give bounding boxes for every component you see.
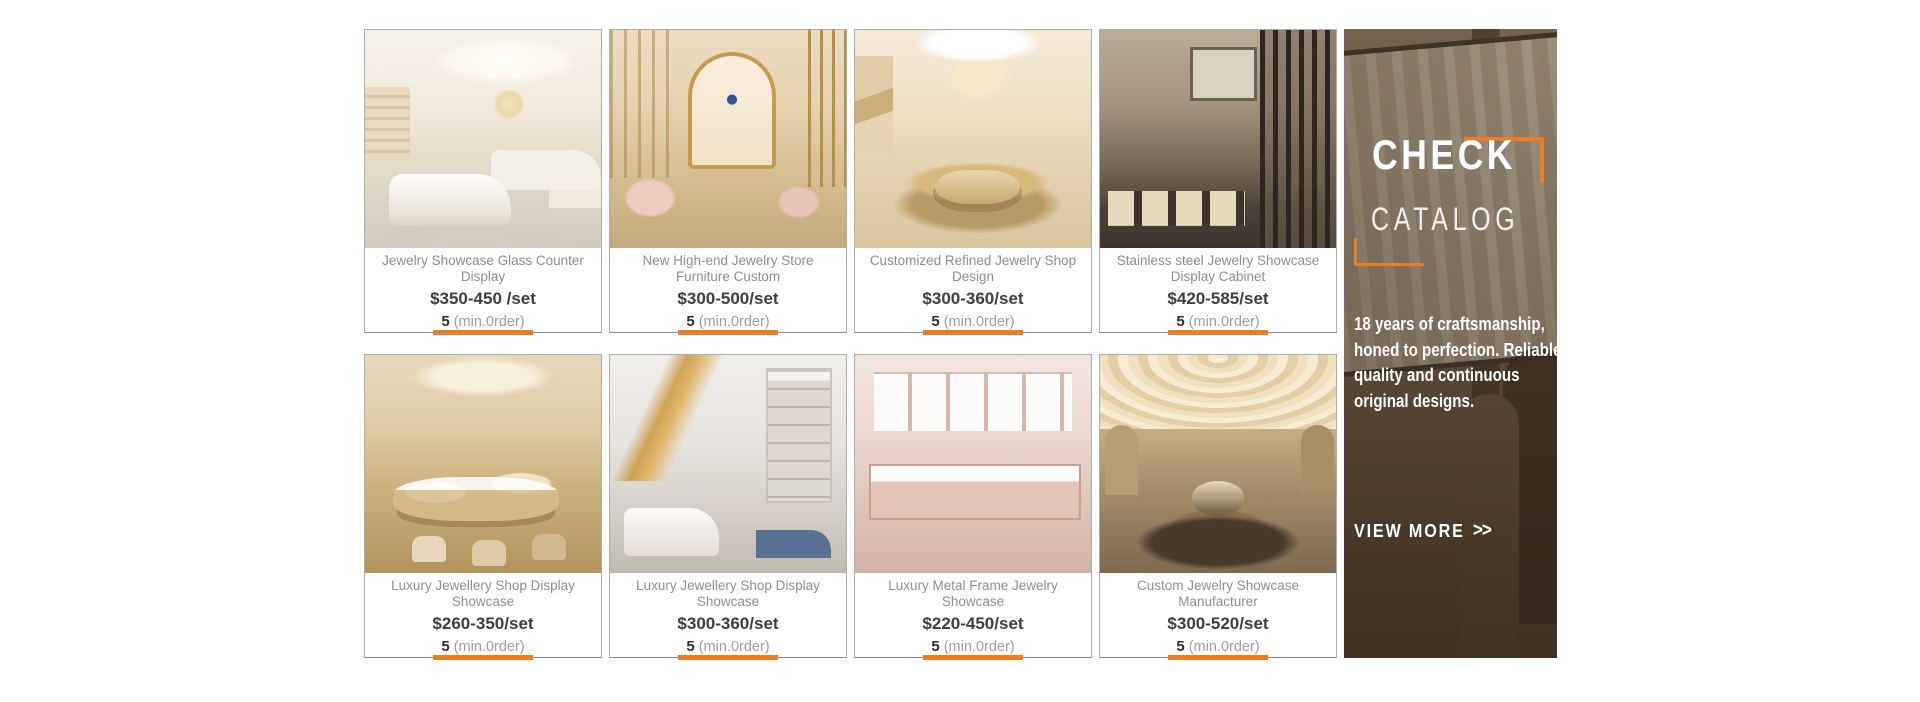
product-card[interactable]: Custom Jewelry Showcase Manufacturer $30… — [1099, 354, 1337, 658]
banner-heading-line2: CATALOG — [1371, 201, 1519, 238]
product-price: $300-360/set — [610, 614, 846, 638]
product-price: $300-360/set — [855, 289, 1091, 313]
min-order-label: (min.0rder) — [454, 639, 525, 655]
product-price: $420-585/set — [1100, 289, 1336, 313]
bracket-bottom-left-icon — [1354, 238, 1424, 266]
product-title: Customized Refined Jewelry Shop Design — [855, 252, 1091, 286]
product-title: Luxury Metal Frame Jewelry Showcase — [855, 577, 1091, 611]
product-title: Jewelry Showcase Glass Counter Display — [365, 252, 601, 286]
product-card[interactable]: Jewelry Showcase Glass Counter Display $… — [364, 29, 602, 333]
min-order-label: (min.0rder) — [454, 314, 525, 330]
product-image — [1100, 30, 1336, 248]
card-accent-bar — [1168, 330, 1268, 335]
double-arrow-icon: >> — [1473, 520, 1491, 542]
product-title: Luxury Jewellery Shop Display Showcase — [365, 577, 601, 611]
product-card[interactable]: Luxury Metal Frame Jewelry Showcase $220… — [854, 354, 1092, 658]
product-image — [365, 355, 601, 573]
min-order-qty: 5 — [686, 313, 694, 330]
banner-content: CHECK CATALOG 18 years of craftsmanship,… — [1344, 29, 1557, 658]
min-order-qty: 5 — [686, 638, 694, 655]
product-grid: Jewelry Showcase Glass Counter Display $… — [364, 29, 1337, 658]
product-price: $220-450/set — [855, 614, 1091, 638]
min-order-qty: 5 — [1176, 638, 1184, 655]
min-order-qty: 5 — [441, 638, 449, 655]
min-order-label: (min.0rder) — [1189, 639, 1260, 655]
product-card[interactable]: Luxury Jewellery Shop Display Showcase $… — [609, 354, 847, 658]
product-image — [365, 30, 601, 248]
product-card[interactable]: Customized Refined Jewelry Shop Design $… — [854, 29, 1092, 333]
card-accent-bar — [923, 655, 1023, 660]
product-title: Luxury Jewellery Shop Display Showcase — [610, 577, 846, 611]
product-price: $300-500/set — [610, 289, 846, 313]
min-order-label: (min.0rder) — [699, 314, 770, 330]
product-card[interactable]: Stainless steel Jewelry Showcase Display… — [1099, 29, 1337, 333]
product-title: Stainless steel Jewelry Showcase Display… — [1100, 252, 1336, 286]
card-accent-bar — [678, 330, 778, 335]
min-order-qty: 5 — [441, 313, 449, 330]
banner-heading-line1: CHECK — [1372, 131, 1516, 179]
product-image — [610, 30, 846, 248]
product-price: $350-450 /set — [365, 289, 601, 313]
view-more-link[interactable]: VIEW MORE >> — [1354, 520, 1491, 542]
card-accent-bar — [678, 655, 778, 660]
product-title: New High-end Jewelry Store Furniture Cus… — [610, 252, 846, 286]
min-order-qty: 5 — [931, 638, 939, 655]
min-order-qty: 5 — [1176, 313, 1184, 330]
catalog-banner[interactable]: CHECK CATALOG 18 years of craftsmanship,… — [1344, 29, 1557, 658]
card-accent-bar — [433, 330, 533, 335]
min-order-label: (min.0rder) — [944, 314, 1015, 330]
product-card[interactable]: Luxury Jewellery Shop Display Showcase $… — [364, 354, 602, 658]
product-title: Custom Jewelry Showcase Manufacturer — [1100, 577, 1336, 611]
product-price: $300-520/set — [1100, 614, 1336, 638]
card-accent-bar — [1168, 655, 1268, 660]
min-order-label: (min.0rder) — [944, 639, 1015, 655]
card-accent-bar — [433, 655, 533, 660]
content-area: Jewelry Showcase Glass Counter Display $… — [364, 0, 1920, 658]
view-more-label: VIEW MORE — [1354, 521, 1465, 542]
product-image — [855, 30, 1091, 248]
product-card[interactable]: New High-end Jewelry Store Furniture Cus… — [609, 29, 847, 333]
product-image — [610, 355, 846, 573]
product-price: $260-350/set — [365, 614, 601, 638]
banner-description: 18 years of craftsmanship, honed to perf… — [1354, 312, 1557, 414]
min-order-label: (min.0rder) — [699, 639, 770, 655]
min-order-qty: 5 — [931, 313, 939, 330]
min-order-label: (min.0rder) — [1189, 314, 1260, 330]
card-accent-bar — [923, 330, 1023, 335]
product-image — [855, 355, 1091, 573]
product-image — [1100, 355, 1336, 573]
